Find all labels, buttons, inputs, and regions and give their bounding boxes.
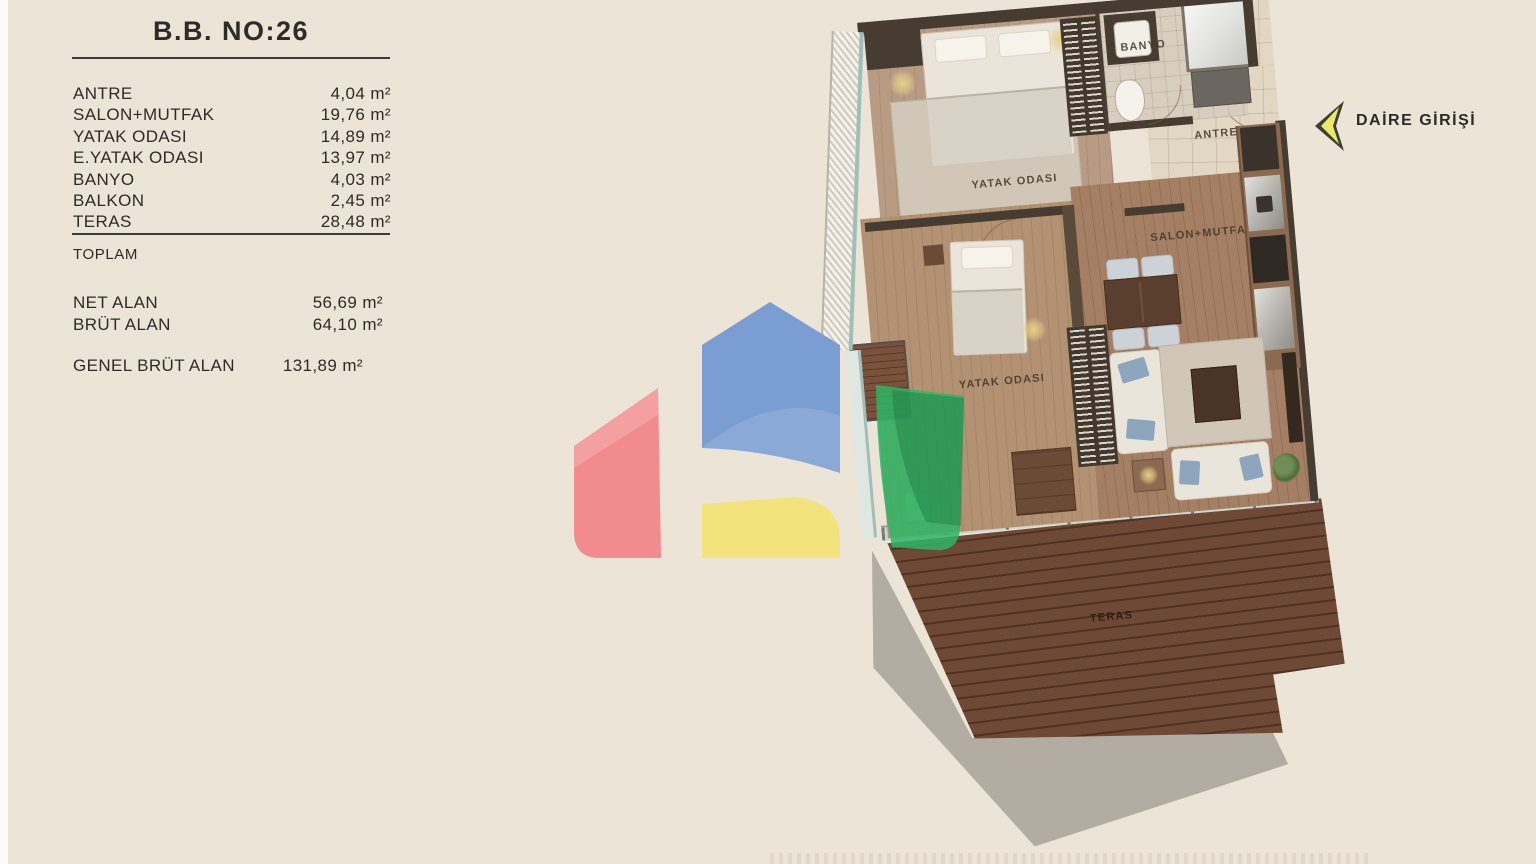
side-table: [1131, 458, 1166, 493]
cooktop: [1249, 234, 1289, 283]
grand-total-row: GENEL BRÜT ALAN 131,89 m²: [73, 356, 391, 376]
pillow: [961, 246, 1014, 270]
room-label: TERAS: [73, 211, 132, 232]
room-area-row: YATAK ODASI 14,89 m²: [73, 126, 391, 147]
unit-title: B.B. NO:26: [72, 16, 390, 47]
room-area-row: ANTRE 4,04 m²: [73, 83, 391, 104]
room-label: SALON+MUTFAK: [73, 104, 214, 125]
room-area-row: SALON+MUTFAK 19,76 m²: [73, 104, 391, 125]
shower-mat: [1191, 67, 1252, 108]
toplam-label: TOPLAM: [73, 246, 138, 263]
divider-top: [72, 57, 390, 59]
blanket: [927, 86, 1072, 166]
page: B.B. NO:26 ANTRE 4,04 m² SALON+MUTFAK 19…: [0, 0, 1536, 864]
coffee-table: [1191, 365, 1242, 423]
room-area-row: E.YATAK ODASI 13,97 m²: [73, 147, 391, 168]
bottom-edge-texture: [770, 853, 1370, 864]
grand-total-label: GENEL BRÜT ALAN: [73, 356, 235, 376]
room-value: 4,04 m²: [331, 83, 391, 104]
room-label: ANTRE: [73, 83, 133, 104]
sink-bowl: [1256, 195, 1273, 212]
dresser: [1011, 447, 1076, 516]
room-value: 13,97 m²: [321, 147, 391, 168]
entrance-arrow-icon: [1310, 98, 1350, 154]
table-center-line: [1139, 282, 1144, 322]
kitchen-sink: [1244, 175, 1285, 232]
room-area-list: ANTRE 4,04 m² SALON+MUTFAK 19,76 m² YATA…: [73, 83, 391, 233]
dining-chair: [1112, 327, 1146, 351]
room-label: YATAK ODASI: [73, 126, 187, 147]
entrance-label: DAİRE GİRİŞİ: [1356, 112, 1476, 130]
room-value: 28,48 m²: [321, 211, 391, 232]
left-edge-strip: [0, 0, 8, 864]
total-label: NET ALAN: [73, 292, 158, 314]
nightstand: [923, 244, 945, 266]
grand-total-value: 131,89 m²: [283, 356, 391, 376]
brand-logo: [560, 288, 980, 578]
total-value: 56,69 m²: [313, 292, 391, 314]
dining-table: [1103, 274, 1181, 330]
room-label: BANYO: [73, 169, 135, 190]
sofa: [1170, 441, 1272, 501]
room-label: E.YATAK ODASI: [73, 147, 204, 168]
sofa-pillow: [1117, 356, 1150, 383]
sofa-pillow: [1126, 419, 1156, 441]
sofa-pillow: [1239, 453, 1264, 481]
table-lamp: [1138, 464, 1160, 486]
totals-list: NET ALAN 56,69 m² BRÜT ALAN 64,10 m²: [73, 292, 391, 336]
sink-counter: [1103, 11, 1159, 65]
fridge: [1240, 125, 1280, 172]
sofa-pillow: [1179, 460, 1200, 485]
terrace-label: TERAS: [1041, 605, 1182, 629]
room-area-row: BANYO 4,03 m²: [73, 169, 391, 190]
room-value: 19,76 m²: [321, 104, 391, 125]
total-row: BRÜT ALAN 64,10 m²: [73, 314, 391, 336]
bedroom-top-corner-wall: [864, 27, 923, 70]
room-label: BALKON: [73, 190, 144, 211]
room-value: 4,03 m²: [331, 169, 391, 190]
pillow: [998, 29, 1052, 57]
room-area-row: TERAS 28,48 m²: [73, 211, 391, 232]
total-value: 64,10 m²: [313, 314, 391, 336]
room-value: 2,45 m²: [331, 190, 391, 211]
hanger-pattern: [1070, 328, 1116, 464]
pillow: [934, 35, 988, 63]
room-value: 14,89 m²: [321, 126, 391, 147]
total-label: BRÜT ALAN: [73, 314, 171, 336]
divider-bottom: [72, 233, 390, 235]
total-row: NET ALAN 56,69 m²: [73, 292, 391, 314]
room-area-row: BALKON 2,45 m²: [73, 190, 391, 211]
logo-yellow-shape: [702, 497, 840, 558]
